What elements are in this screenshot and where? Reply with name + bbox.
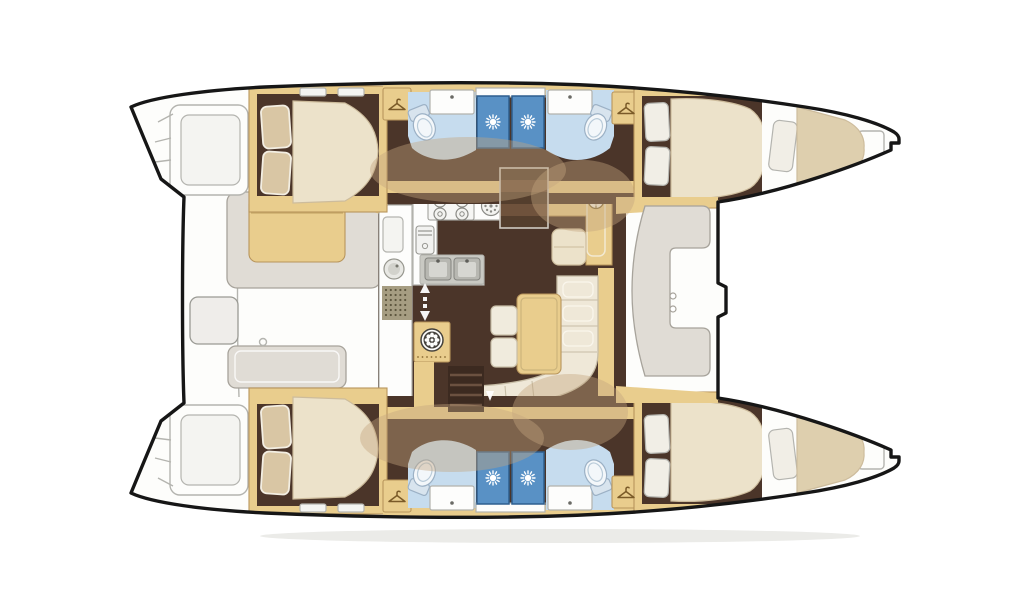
galley-end-panel [414, 362, 434, 408]
cup-holder [670, 293, 676, 299]
catamaran-floorplan [0, 0, 1024, 600]
stool-cushion [491, 306, 517, 335]
washer-drum-icon [421, 329, 443, 351]
counter-hatch [383, 217, 403, 252]
sink-basin-icon [425, 258, 451, 280]
boat-shadow [260, 529, 860, 543]
cup-holder [670, 306, 676, 312]
oven-icon [416, 226, 434, 254]
cockpit-table [190, 297, 238, 344]
salon-table [517, 294, 561, 374]
sink-basin-icon [454, 258, 480, 280]
stool-cushion [491, 338, 517, 367]
washing-machine [414, 322, 450, 362]
entry-mat-grille [382, 286, 412, 320]
floorplan-canvas [0, 0, 1024, 600]
